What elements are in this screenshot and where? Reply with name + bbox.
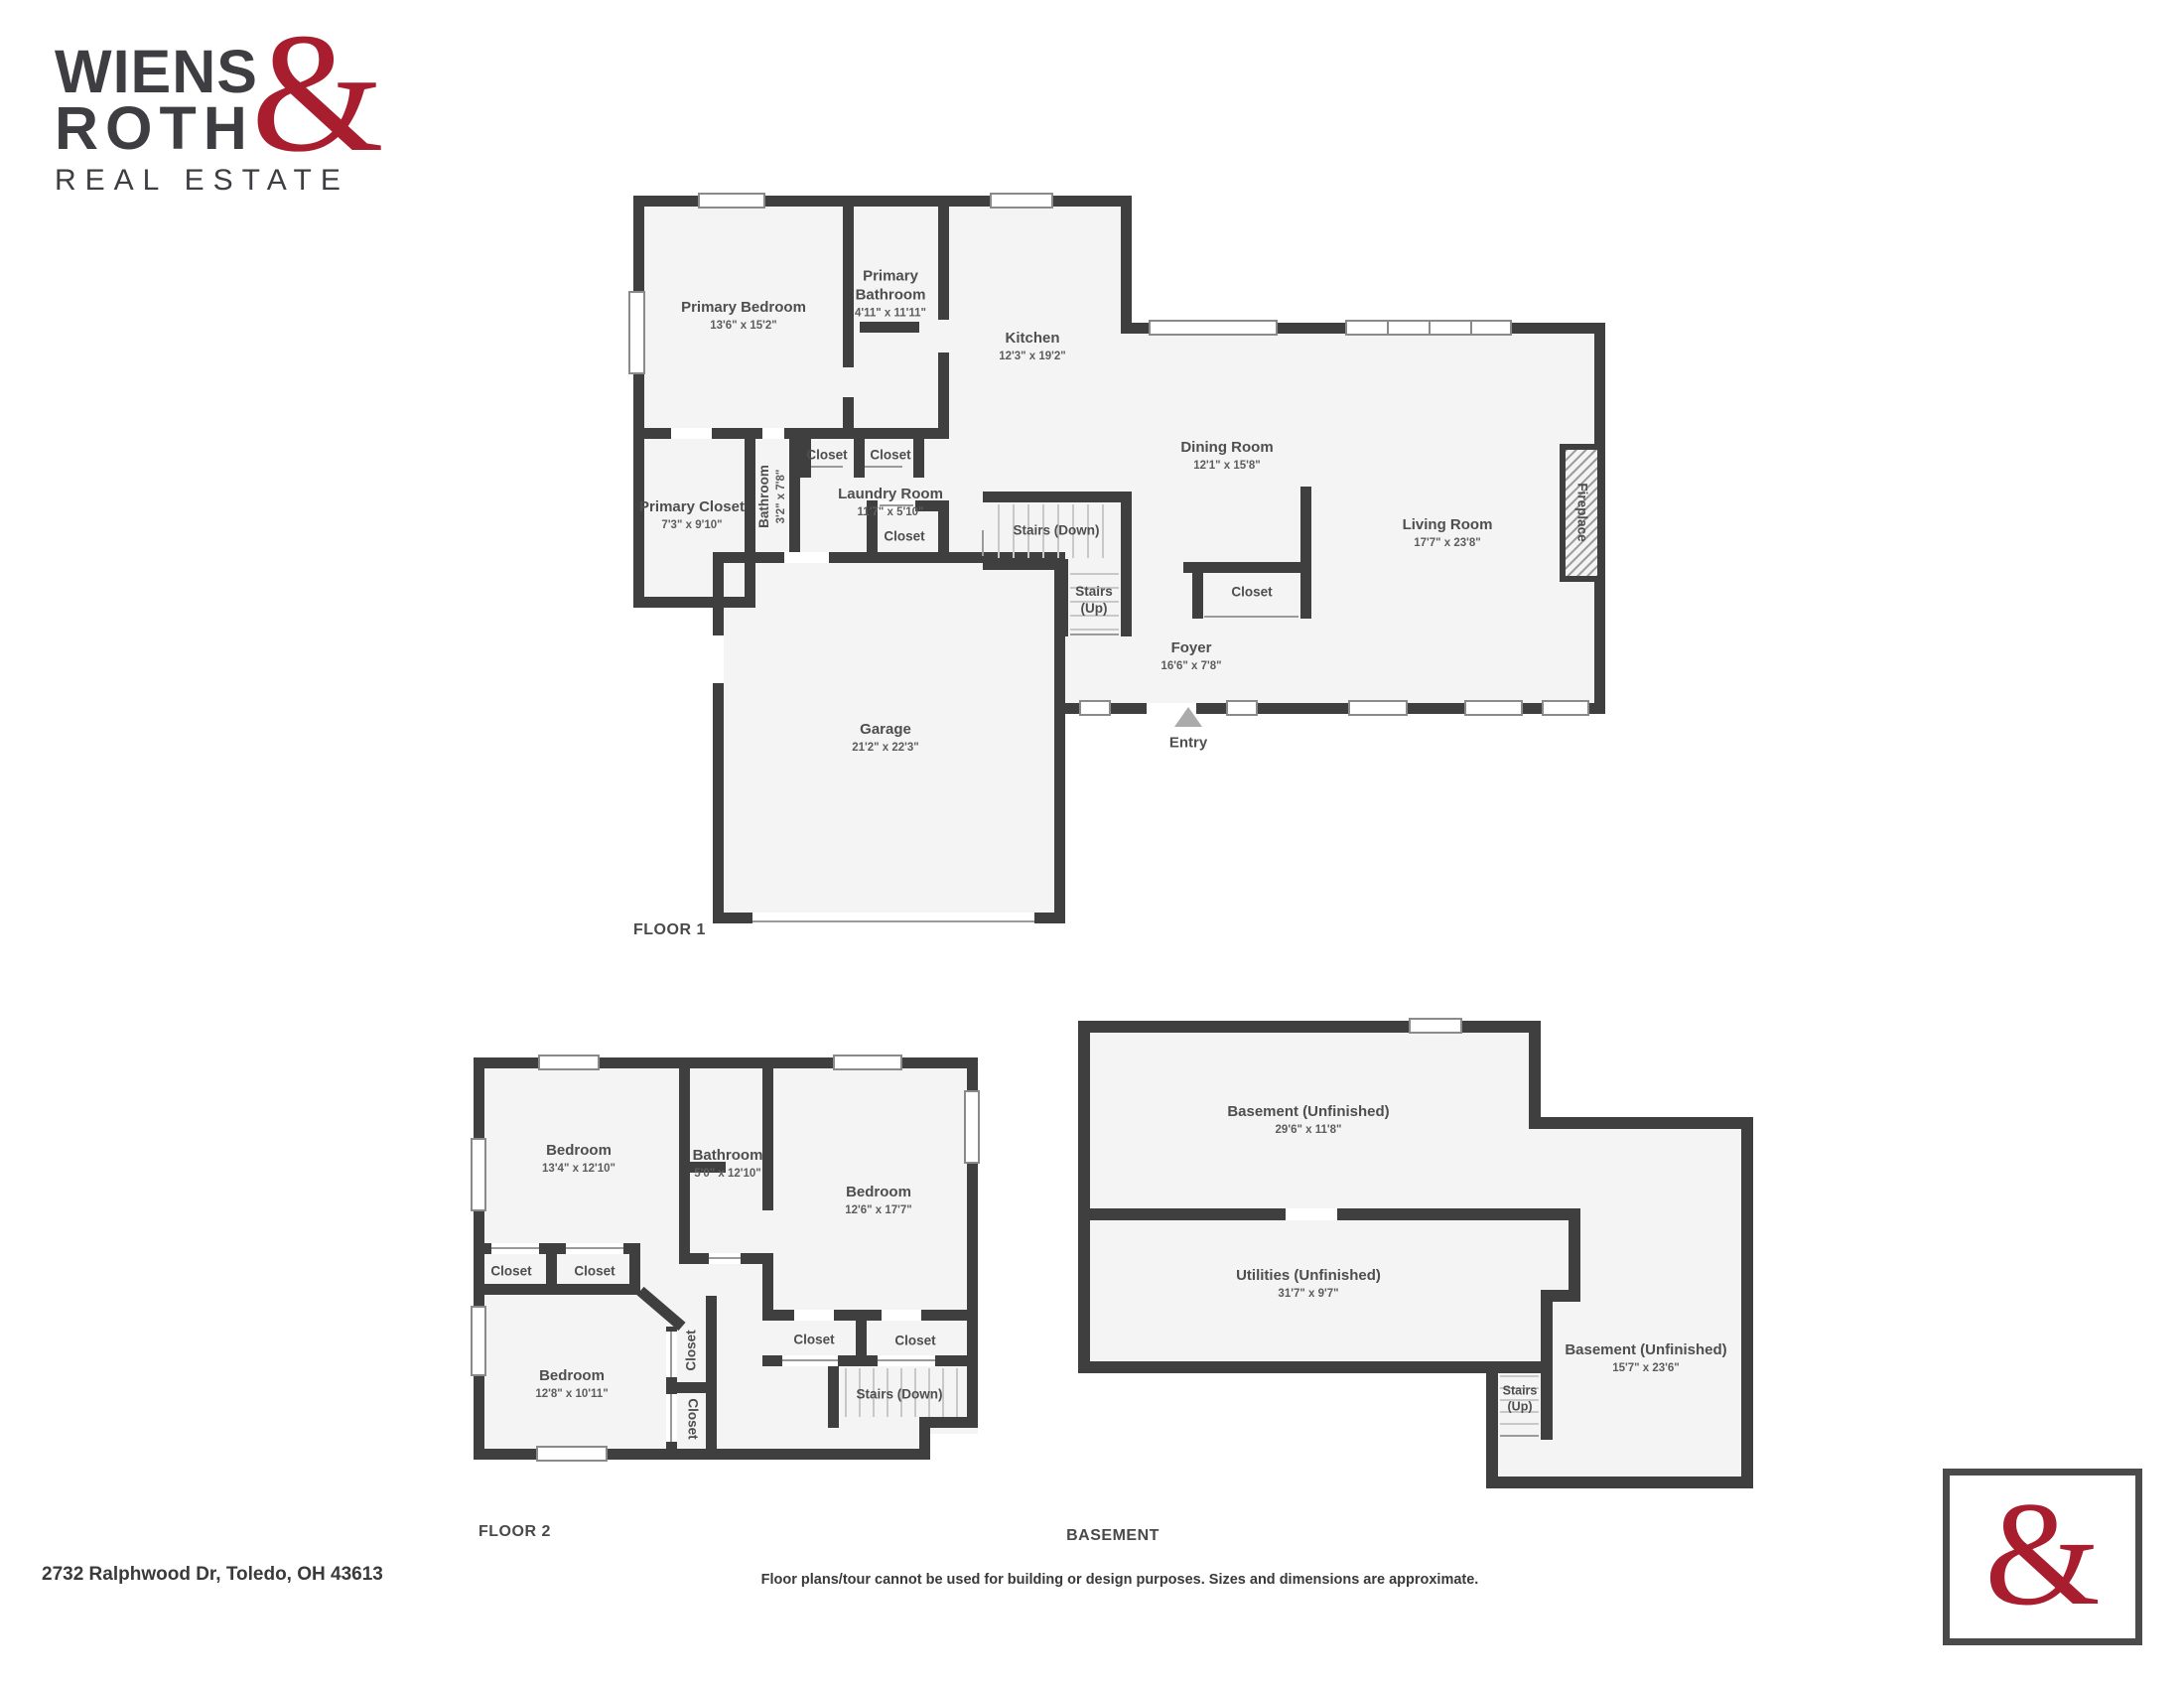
closet-f1-foyer: Closet [1231,585,1272,602]
stairs-up-f1: Stairs (Up) [1075,584,1113,618]
floor1-title: FLOOR 1 [633,921,706,939]
closet-f1-b: Closet [870,448,910,465]
brand-logo: WIENS ROTH & REAL ESTATE [55,44,412,217]
closet-f2-d: Closet [894,1334,935,1350]
closet-f1-laundry: Closet [884,529,924,546]
room-bedroom-2: Bedroom 12'6" x 17'7" [845,1184,912,1217]
room-fireplace: Fireplace [1573,483,1590,541]
ampersand-icon: & [251,8,384,179]
room-primary-bedroom: Primary Bedroom 13'6" x 15'2" [681,299,806,333]
room-living: Living Room 17'7" x 23'8" [1403,516,1493,550]
stairs-down-f2: Stairs (Down) [856,1387,942,1404]
corner-logo-box: & [1943,1469,2142,1645]
room-basement-main: Basement (Unfinished) 29'6" x 11'8" [1227,1103,1389,1137]
floor2-plan [457,1043,993,1470]
room-bathroom-f2: Bathroom 5'0" x 12'10" [693,1147,763,1181]
closet-f2-a: Closet [490,1264,531,1281]
room-utilities: Utilities (Unfinished) 31'7" x 9'7" [1236,1267,1381,1301]
room-bathroom-f1: Bathroom 3'2" x 7'8" [756,465,788,528]
room-bedroom-3: Bedroom 12'8" x 10'11" [535,1367,608,1401]
floor1-plan [596,179,1638,953]
entry-label: Entry [1169,735,1207,754]
room-primary-bathroom: Primary Bathroom 4'11" x 11'11" [841,268,940,321]
room-kitchen: Kitchen 12'3" x 19'2" [999,330,1066,363]
closet-f1-a: Closet [806,448,847,465]
closet-f2-c: Closet [793,1333,834,1349]
basement-title: BASEMENT [1066,1527,1160,1545]
room-basement-right: Basement (Unfinished) 15'7" x 23'6" [1565,1341,1726,1375]
room-dining: Dining Room 12'1" x 15'8" [1180,439,1273,473]
stairs-down-f1: Stairs (Down) [1013,523,1099,540]
room-garage: Garage 21'2" x 22'3" [852,721,919,755]
property-address: 2732 Ralphwood Dr, Toledo, OH 43613 [42,1564,383,1586]
entry-marker-icon [1174,707,1202,727]
disclaimer-text: Floor plans/tour cannot be used for buil… [761,1572,1479,1588]
floorplan-page: WIENS ROTH & REAL ESTATE [0,0,2184,1688]
closet-f2-b: Closet [574,1264,614,1281]
floor2-title: FLOOR 2 [478,1523,551,1541]
closet-f2-v1: Closet [684,1330,701,1370]
room-laundry: Laundry Room 11'7" x 5'10" [838,486,943,519]
corner-ampersand-icon: & [1984,1479,2101,1628]
stairs-up-basement: Stairs (Up) [1503,1383,1538,1414]
room-primary-closet: Primary Closet 7'3" x 9'10" [639,498,745,532]
closet-f2-v2: Closet [684,1398,701,1439]
basement-plan [1062,1003,1767,1499]
room-foyer: Foyer 16'6" x 7'8" [1160,639,1221,673]
room-bedroom-1: Bedroom 13'4" x 12'10" [542,1142,615,1176]
